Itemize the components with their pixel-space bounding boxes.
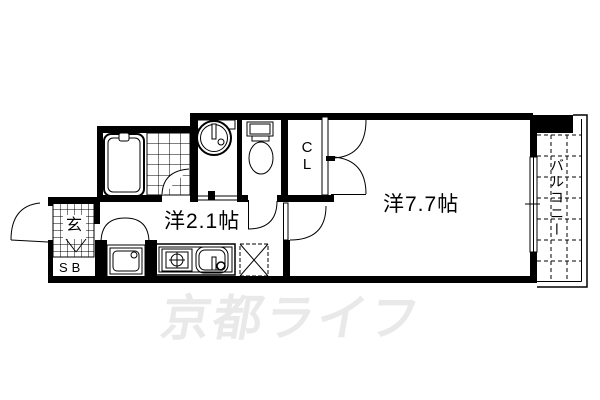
- wall-right-lower: [530, 252, 537, 283]
- shoe-box-label: SB: [59, 261, 84, 274]
- entrance-door-swing-icon: [11, 203, 48, 242]
- wall-washer-right: [145, 240, 157, 278]
- closet-label: CL: [299, 139, 315, 173]
- wall-corner-tile: [190, 195, 198, 202]
- wall-right-upper: [530, 115, 537, 157]
- wall-washer-left: [95, 240, 107, 278]
- closet-double-door-icon: [326, 120, 366, 195]
- window-icon: [525, 157, 540, 252]
- washer-closet-doors-icon: [101, 218, 149, 243]
- wall-bath-left: [97, 126, 103, 198]
- main-room-label: 洋7.7帖: [383, 194, 459, 215]
- balcony-label: バルコニー: [550, 158, 564, 238]
- wall-entrance-right-stub: [94, 197, 100, 224]
- entrance-label: 玄: [66, 218, 82, 234]
- wall-corner-block: [532, 115, 573, 133]
- toilet-door-swing-icon: [248, 200, 277, 229]
- wall-below-closet: [277, 195, 334, 202]
- washing-machine-space-icon: [107, 245, 145, 277]
- wall-tile-basin-divider: [190, 113, 198, 198]
- washbasin-icon: [196, 120, 235, 155]
- watermark: 京都ライフ: [156, 279, 429, 350]
- wall-entrance-left-lower: [48, 240, 53, 280]
- wall-toilet-closet-divider: [281, 113, 288, 198]
- toilet-icon: [247, 122, 273, 174]
- washbasin-room-opening: [198, 196, 237, 200]
- wall-entrance-left-upper: [48, 197, 53, 206]
- wall-bath-top: [97, 126, 194, 133]
- main-room-door-swing-icon: [284, 203, 327, 240]
- refrigerator-space-icon: [240, 244, 268, 276]
- kitchen-sink-icon: [196, 247, 228, 273]
- wall-toilet-jamb: [237, 195, 248, 202]
- floor-plan: 洋7.7帖 洋2.1帖 CL バルコニー 玄 SB 京都ライフ: [0, 0, 600, 400]
- wall-basin-toilet-divider: [237, 113, 242, 198]
- kitchen-hall-label: 洋2.1帖: [164, 211, 240, 232]
- gas-stove-icon: [162, 249, 192, 271]
- bathtub-icon: [104, 133, 144, 196]
